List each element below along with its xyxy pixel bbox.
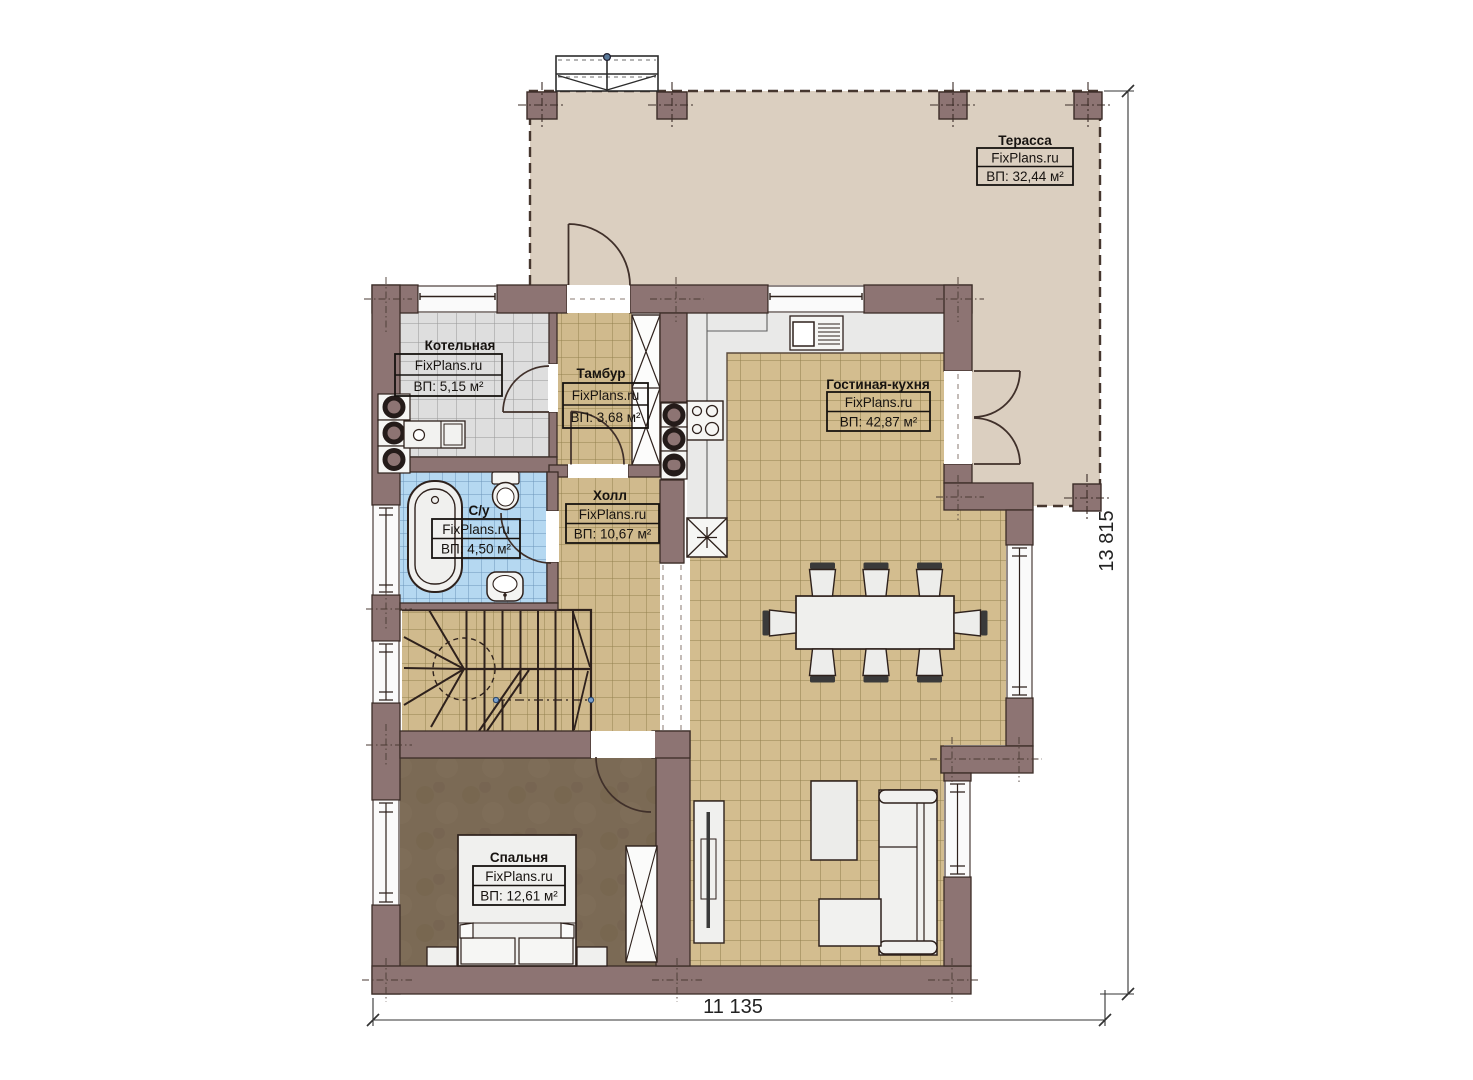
svg-text:FixPlans.ru: FixPlans.ru [415, 358, 483, 373]
svg-text:Котельная: Котельная [425, 338, 496, 353]
svg-text:Терасса: Терасса [998, 133, 1052, 148]
svg-text:Тамбур: Тамбур [577, 366, 626, 381]
svg-text:ВП: 4,50 м²: ВП: 4,50 м² [441, 542, 512, 557]
svg-text:FixPlans.ru: FixPlans.ru [572, 388, 640, 403]
svg-text:Спальня: Спальня [490, 850, 548, 865]
svg-text:FixPlans.ru: FixPlans.ru [845, 395, 913, 410]
svg-text:ВП: 12,61 м²: ВП: 12,61 м² [480, 889, 558, 904]
svg-text:С/у: С/у [468, 503, 490, 518]
svg-text:13 815: 13 815 [1096, 510, 1118, 571]
svg-text:FixPlans.ru: FixPlans.ru [991, 151, 1059, 166]
svg-text:11 135: 11 135 [703, 996, 763, 1018]
svg-text:FixPlans.ru: FixPlans.ru [442, 522, 510, 537]
svg-text:ВП: 42,87 м²: ВП: 42,87 м² [840, 415, 918, 430]
svg-text:FixPlans.ru: FixPlans.ru [579, 507, 647, 522]
svg-text:ВП: 5,15 м²: ВП: 5,15 м² [413, 379, 484, 394]
svg-text:ВП: 3,68 м²: ВП: 3,68 м² [570, 410, 641, 425]
svg-text:Гостиная-кухня: Гостиная-кухня [826, 377, 929, 392]
svg-text:Холл: Холл [593, 488, 627, 503]
svg-text:ВП: 32,44 м²: ВП: 32,44 м² [986, 169, 1064, 184]
svg-text:ВП: 10,67 м²: ВП: 10,67 м² [574, 527, 652, 542]
svg-text:FixPlans.ru: FixPlans.ru [485, 869, 553, 884]
